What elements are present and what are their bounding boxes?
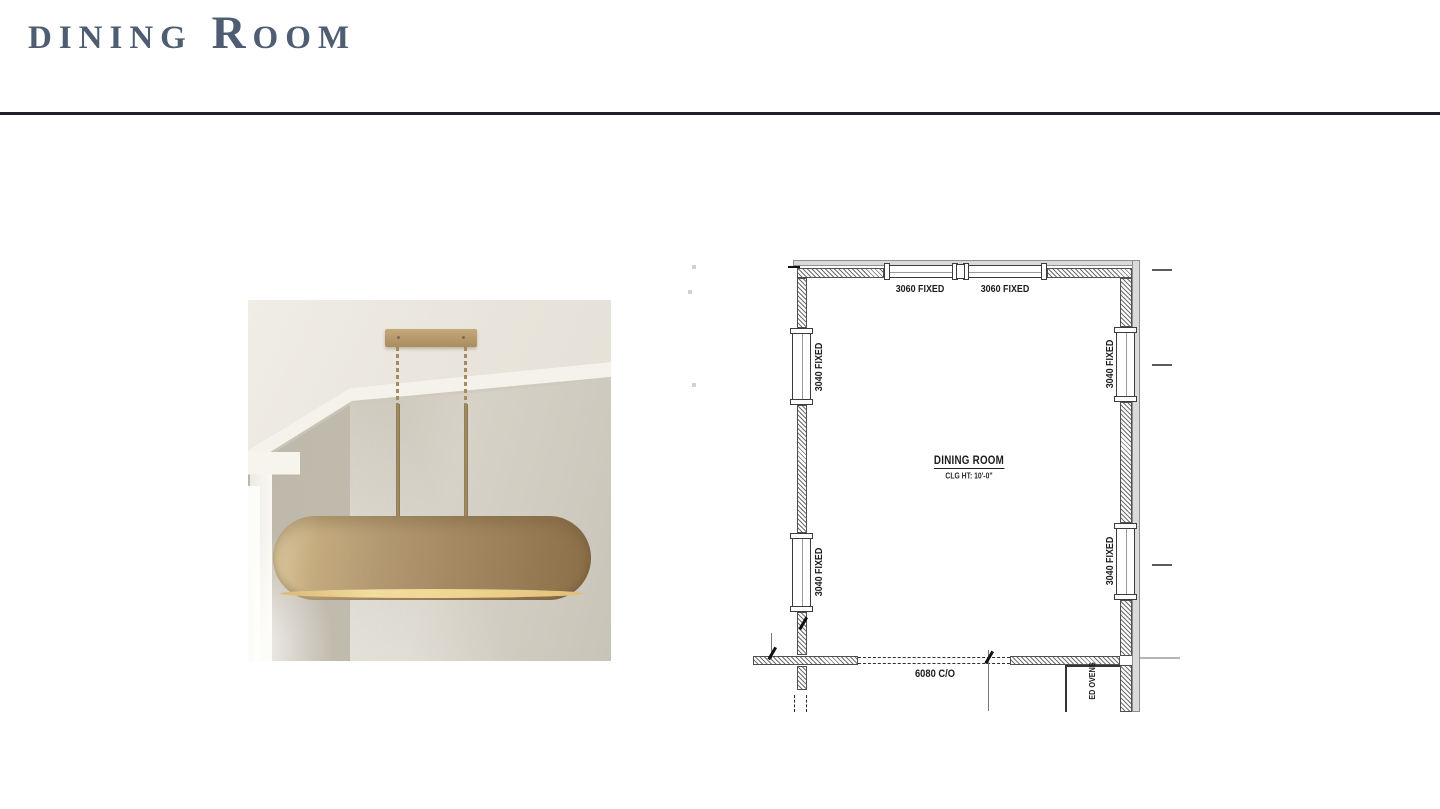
wall-segment [1120,402,1132,523]
print-speck [692,383,696,387]
window-symbol [792,533,811,612]
print-speck [688,290,692,294]
grid-tick [1152,564,1172,566]
window-symbol [884,265,958,278]
window-label: 3040 FIXED [813,343,825,392]
fixture-chain [464,347,467,405]
print-speck [692,265,696,269]
opening-label: 6080 C/O [915,668,955,680]
wall-segment [1010,656,1120,665]
wall-dashed-line [806,695,807,712]
header-divider-line [0,112,1440,115]
wall-segment [797,278,807,328]
window-symbol [1116,523,1135,600]
window-mullion [956,264,965,279]
window-label: 3040 FIXED [813,548,825,597]
wall-segment [1120,665,1132,712]
window-symbol [1116,327,1135,402]
wall-segment [797,268,884,278]
fixture-rod [396,404,400,517]
corner-tick [788,266,800,268]
grid-tick [1152,364,1172,366]
room-name-label: DINING ROOM [934,455,1004,469]
pendant-light-photo [248,300,611,661]
window-label: 3060 FIXED [896,283,945,295]
window-symbol [963,265,1047,278]
wall-dashed-line [794,695,795,712]
dining-room-floor-plan: 3060 FIXED 3060 FIXED 3040 FIXED 3040 FI… [750,255,1190,720]
page-title: dining Room [28,8,356,60]
cabinet-line [1065,665,1067,712]
wall-segment [797,405,807,533]
window-label: 3060 FIXED [981,283,1030,295]
grid-tick [1152,269,1172,271]
window-symbol [792,328,811,405]
brass-drum-shade [273,516,591,600]
appliance-label: ED OVENS [1087,662,1097,699]
reference-line [1140,657,1180,659]
wall-segment [1120,600,1132,656]
shade-glow-rim [280,589,584,598]
fixture-chain [396,347,399,405]
window-casing-cap [248,452,300,475]
wall-segment [1047,268,1132,278]
ceiling-height-label: CLG HT: 10'-0" [945,472,992,481]
fixture-rod [464,404,468,517]
window-label: 3040 FIXED [1104,537,1116,586]
fixture-canopy [385,329,477,347]
wall-segment [797,666,807,690]
window-label: 3040 FIXED [1104,340,1116,389]
wall-segment [1120,278,1132,327]
